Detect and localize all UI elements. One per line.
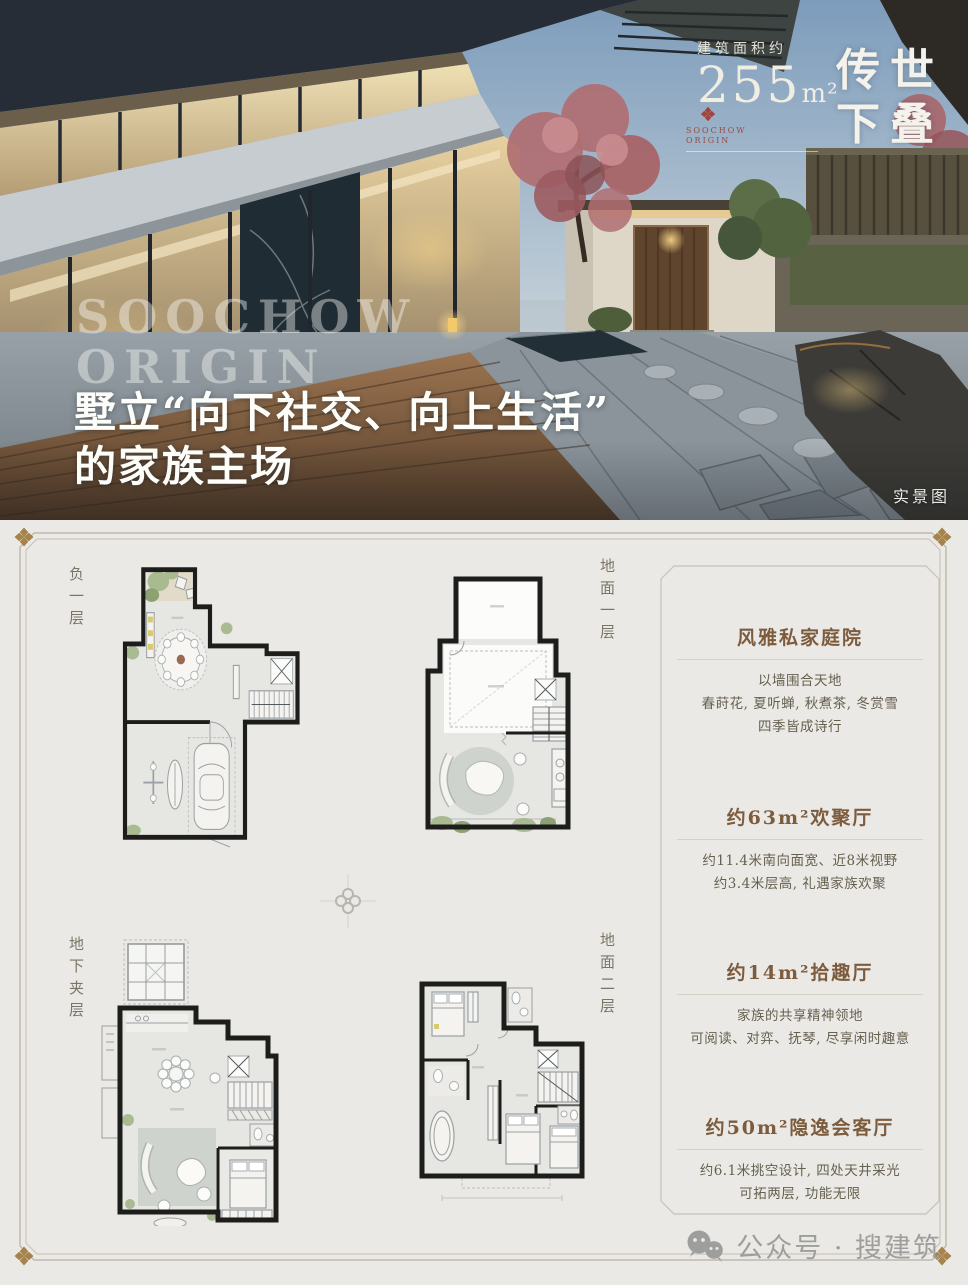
floorplan-label-ground-1: 地面一层 <box>597 558 618 646</box>
floorplan-label-ground-2: 地面二层 <box>597 932 618 1020</box>
panel-section-leisure-hall: 约14m²拾趣厅 家族的共享精神领地 可阅读、对弈、抚琴, 尽享闲时趣意 <box>660 958 940 1051</box>
section-line: 家族的共享精神领地 <box>660 1005 940 1028</box>
brand-logo-text: SOOCHOW ORIGIN <box>686 126 826 146</box>
section-title: 约14m²拾趣厅 <box>660 958 940 985</box>
panel-section-living-hall: 约63m²欢聚厅 约11.4米南向面宽、近8米视野 约3.4米层高, 礼遇家族欢… <box>660 803 940 896</box>
floorplan-basement-1 <box>110 558 310 848</box>
brand-logo-line1: SOOCHOW <box>686 126 826 136</box>
floorplan-ground-2 <box>412 976 598 1204</box>
section-title: 风雅私家庭院 <box>660 623 940 650</box>
section-line: 约11.4米南向面宽、近8米视野 <box>660 850 940 873</box>
section-line: 约6.1米挑空设计, 四处天井采光 <box>660 1160 940 1183</box>
brand-logo-rule <box>686 151 818 152</box>
headline-line1: 墅立“向下社交、向上生活” <box>74 386 610 440</box>
footer-account-label: 公众号 · 搜建筑 <box>736 1226 942 1265</box>
section-line: 约3.4米层高, 礼遇家族欢聚 <box>660 873 940 896</box>
floorplan-ground-1 <box>406 575 578 833</box>
photo-type-label: 实景图 <box>893 483 950 507</box>
brand-emblem-icon <box>700 106 716 122</box>
area-approx-label: 建筑面积约 <box>697 38 839 58</box>
panel-section-courtyard: 风雅私家庭院 以墙围合天地 春莳花, 夏听蝉, 秋煮茶, 冬赏雪 四季皆成诗行 <box>660 623 940 739</box>
section-line: 可阅读、对弈、抚琴, 尽享闲时趣意 <box>660 1028 940 1051</box>
brand-logo-line2: ORIGIN <box>686 136 826 146</box>
brand-watermark-line1: SOOCHOW <box>76 292 417 342</box>
product-name: 传世 下叠 <box>836 44 944 152</box>
section-line: 四季皆成诗行 <box>660 716 940 739</box>
product-name-line2: 下叠 <box>836 98 944 152</box>
wechat-icon <box>684 1229 726 1263</box>
area-block: 建筑面积约 255m² <box>697 38 839 110</box>
section-divider <box>677 659 923 660</box>
area-unit: m² <box>801 79 838 109</box>
floorplan-label-basement-1: 负一层 <box>66 566 87 632</box>
section-line: 春莳花, 夏听蝉, 秋煮茶, 冬赏雪 <box>660 693 940 716</box>
floorplan-label-mezzanine: 地下夹层 <box>66 936 87 1024</box>
section-divider <box>677 994 923 995</box>
product-name-line1: 传世 <box>836 44 944 98</box>
brand-logo: SOOCHOW ORIGIN <box>686 106 826 152</box>
section-title: 约50m²隐逸会客厅 <box>660 1113 940 1140</box>
brand-watermark-line2: ORIGIN <box>76 342 417 392</box>
section-title: 约63m²欢聚厅 <box>660 803 940 830</box>
panel-section-reception-hall: 约50m²隐逸会客厅 约6.1米挑空设计, 四处天井采光 可拓两层, 功能无限 <box>660 1113 940 1206</box>
headline-line2: 的家族主场 <box>74 440 610 494</box>
info-panel: 风雅私家庭院 以墙围合天地 春莳花, 夏听蝉, 秋煮茶, 冬赏雪 四季皆成诗行 … <box>660 565 940 1215</box>
poster: SOOCHOW ORIGIN 建筑面积约 255m² 传世 下叠 <box>0 0 968 1285</box>
brand-watermark: SOOCHOW ORIGIN <box>76 292 417 392</box>
footer: 公众号 · 搜建筑 <box>684 1226 942 1265</box>
headline: 墅立“向下社交、向上生活” 的家族主场 <box>74 386 610 494</box>
section-divider <box>677 839 923 840</box>
area-figure: 255m² <box>697 60 839 110</box>
section-line: 可拓两层, 功能无限 <box>660 1183 940 1206</box>
floorplan-basement-mezzanine <box>100 938 290 1226</box>
section-divider <box>677 1149 923 1150</box>
hero-photo: SOOCHOW ORIGIN 建筑面积约 255m² 传世 下叠 <box>0 0 968 520</box>
section-line: 以墙围合天地 <box>660 670 940 693</box>
divider-ornament-icon <box>320 874 376 928</box>
